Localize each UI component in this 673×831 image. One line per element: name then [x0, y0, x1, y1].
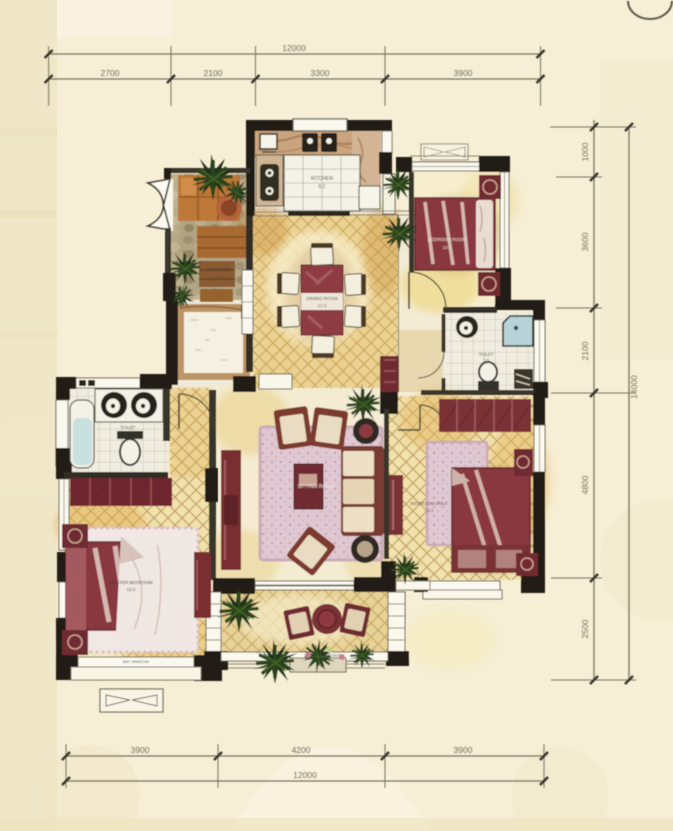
svg-text:2700: 2700 — [101, 68, 120, 78]
svg-text:BAY WINDOW: BAY WINDOW — [123, 659, 150, 664]
svg-text:3900: 3900 — [131, 745, 150, 755]
svg-text:ENTRANCE: ENTRANCE — [207, 267, 230, 272]
svg-text:8.2: 8.2 — [319, 184, 326, 190]
svg-text:2100: 2100 — [580, 341, 590, 360]
svg-text:BEDROOM ROOM: BEDROOM ROOM — [428, 237, 467, 242]
svg-text:BEDROOM AREA: BEDROOM AREA — [411, 501, 448, 506]
svg-text:10.1: 10.1 — [443, 245, 452, 250]
svg-text:4200: 4200 — [292, 745, 311, 755]
svg-text:TOILET: TOILET — [121, 425, 136, 430]
svg-text:MASTER BEDROOM: MASTER BEDROOM — [109, 580, 153, 585]
svg-text:12000: 12000 — [293, 770, 317, 780]
svg-text:12000: 12000 — [282, 43, 306, 53]
svg-text:2100: 2100 — [204, 68, 223, 78]
svg-text:3600: 3600 — [580, 232, 590, 251]
svg-text:15.6: 15.6 — [127, 587, 136, 592]
svg-text:BALCONY: BALCONY — [320, 653, 340, 658]
svg-text:12.2: 12.2 — [425, 508, 434, 513]
svg-text:SITTING ROOM: SITTING ROOM — [298, 484, 335, 490]
svg-text:3.9: 3.9 — [483, 358, 489, 363]
svg-text:4800: 4800 — [580, 475, 590, 494]
svg-text:KITCHEN: KITCHEN — [311, 176, 333, 182]
svg-text:TOILET: TOILET — [479, 352, 494, 357]
svg-text:14000: 14000 — [629, 375, 639, 399]
svg-text:3.8: 3.8 — [216, 274, 222, 279]
svg-text:DINING ROOM: DINING ROOM — [307, 296, 338, 301]
svg-text:12.5: 12.5 — [318, 303, 327, 308]
svg-text:3900: 3900 — [454, 745, 473, 755]
svg-text:3900: 3900 — [454, 68, 473, 78]
svg-text:1000: 1000 — [580, 142, 590, 161]
svg-text:2500: 2500 — [580, 619, 590, 638]
svg-text:3300: 3300 — [311, 68, 330, 78]
